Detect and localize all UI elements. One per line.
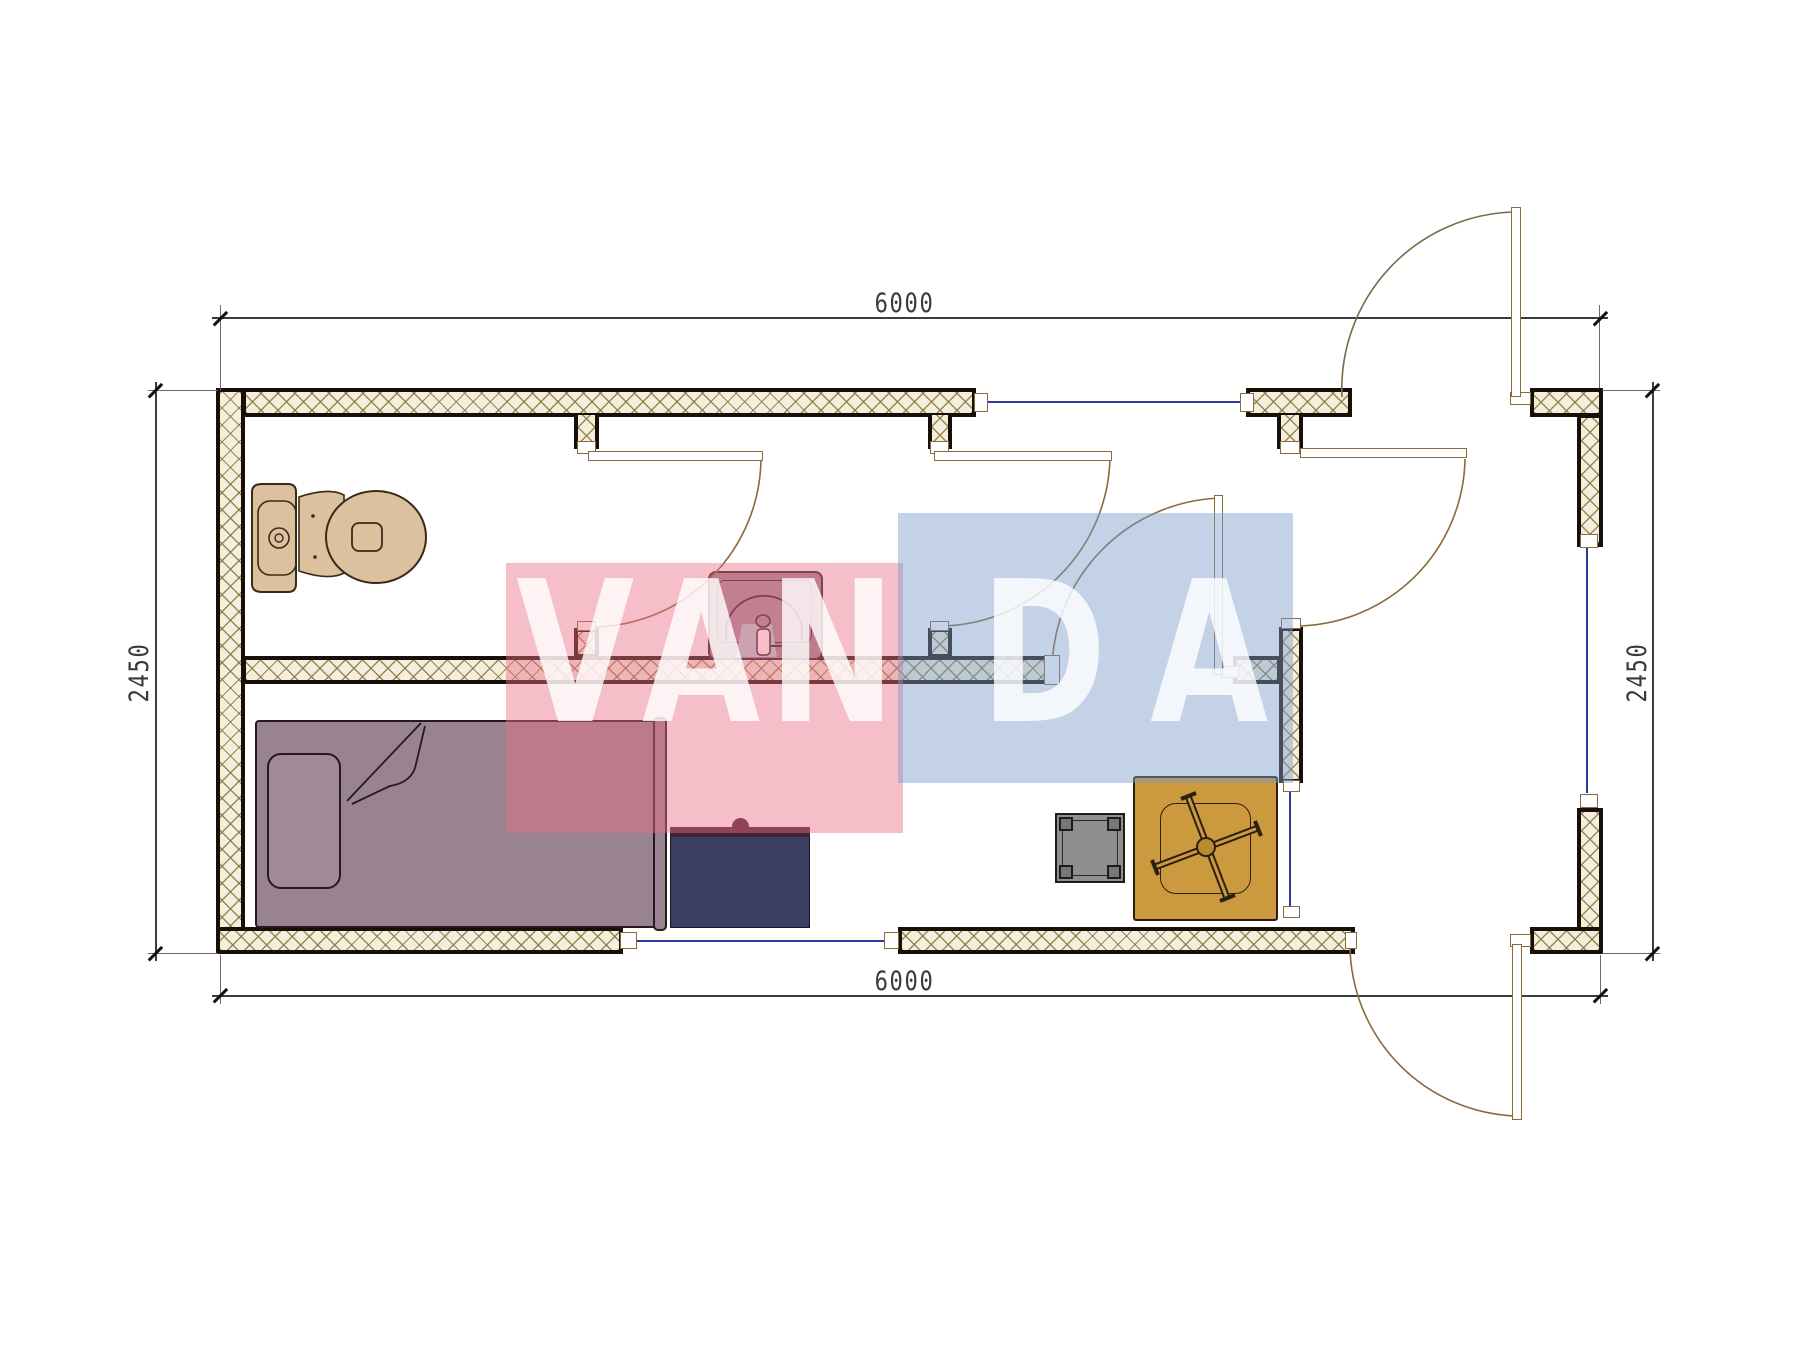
top-entrance-door-arc (1342, 212, 1514, 397)
toilet-icon (252, 484, 426, 592)
jamb-cap (1280, 441, 1300, 454)
shower-door-leaf (934, 451, 1112, 461)
jamb-cap (1283, 780, 1300, 792)
living-door-leaf (1214, 495, 1223, 675)
linework-layer (0, 0, 1800, 1350)
washbasin-bowl-icon (726, 596, 802, 657)
jamb-cap (1580, 794, 1598, 808)
jamb-cap (1580, 534, 1598, 548)
toilet-door-leaf (588, 451, 763, 461)
table-cross-legs (1152, 793, 1261, 901)
jamb-cap (884, 932, 899, 949)
jamb-cap (620, 932, 637, 949)
top-entrance-door-leaf (1511, 207, 1521, 397)
shower-door-arc (940, 458, 1110, 626)
jamb-cap (1281, 618, 1301, 629)
jamb-cap (1283, 906, 1300, 918)
jamb-cap (1345, 932, 1357, 949)
bottom-entrance-door-leaf (1512, 944, 1522, 1120)
jamb-cap (930, 621, 949, 631)
jamb-cap (1240, 393, 1254, 412)
living-door-arc (1052, 498, 1222, 672)
bottom-entrance-door-arc (1350, 946, 1516, 1116)
jamb-cap (577, 621, 596, 631)
toilet-door-arc (591, 458, 761, 627)
jamb-cap (1221, 666, 1239, 678)
jamb-cap (974, 393, 988, 412)
jamb-cap (1044, 655, 1060, 685)
hall-door-arc (1296, 459, 1465, 626)
bed-blanket-fold (347, 723, 425, 804)
floor-plan-canvas: 6000 6000 2450 2450 (0, 0, 1800, 1350)
hall-door-leaf (1300, 448, 1467, 458)
